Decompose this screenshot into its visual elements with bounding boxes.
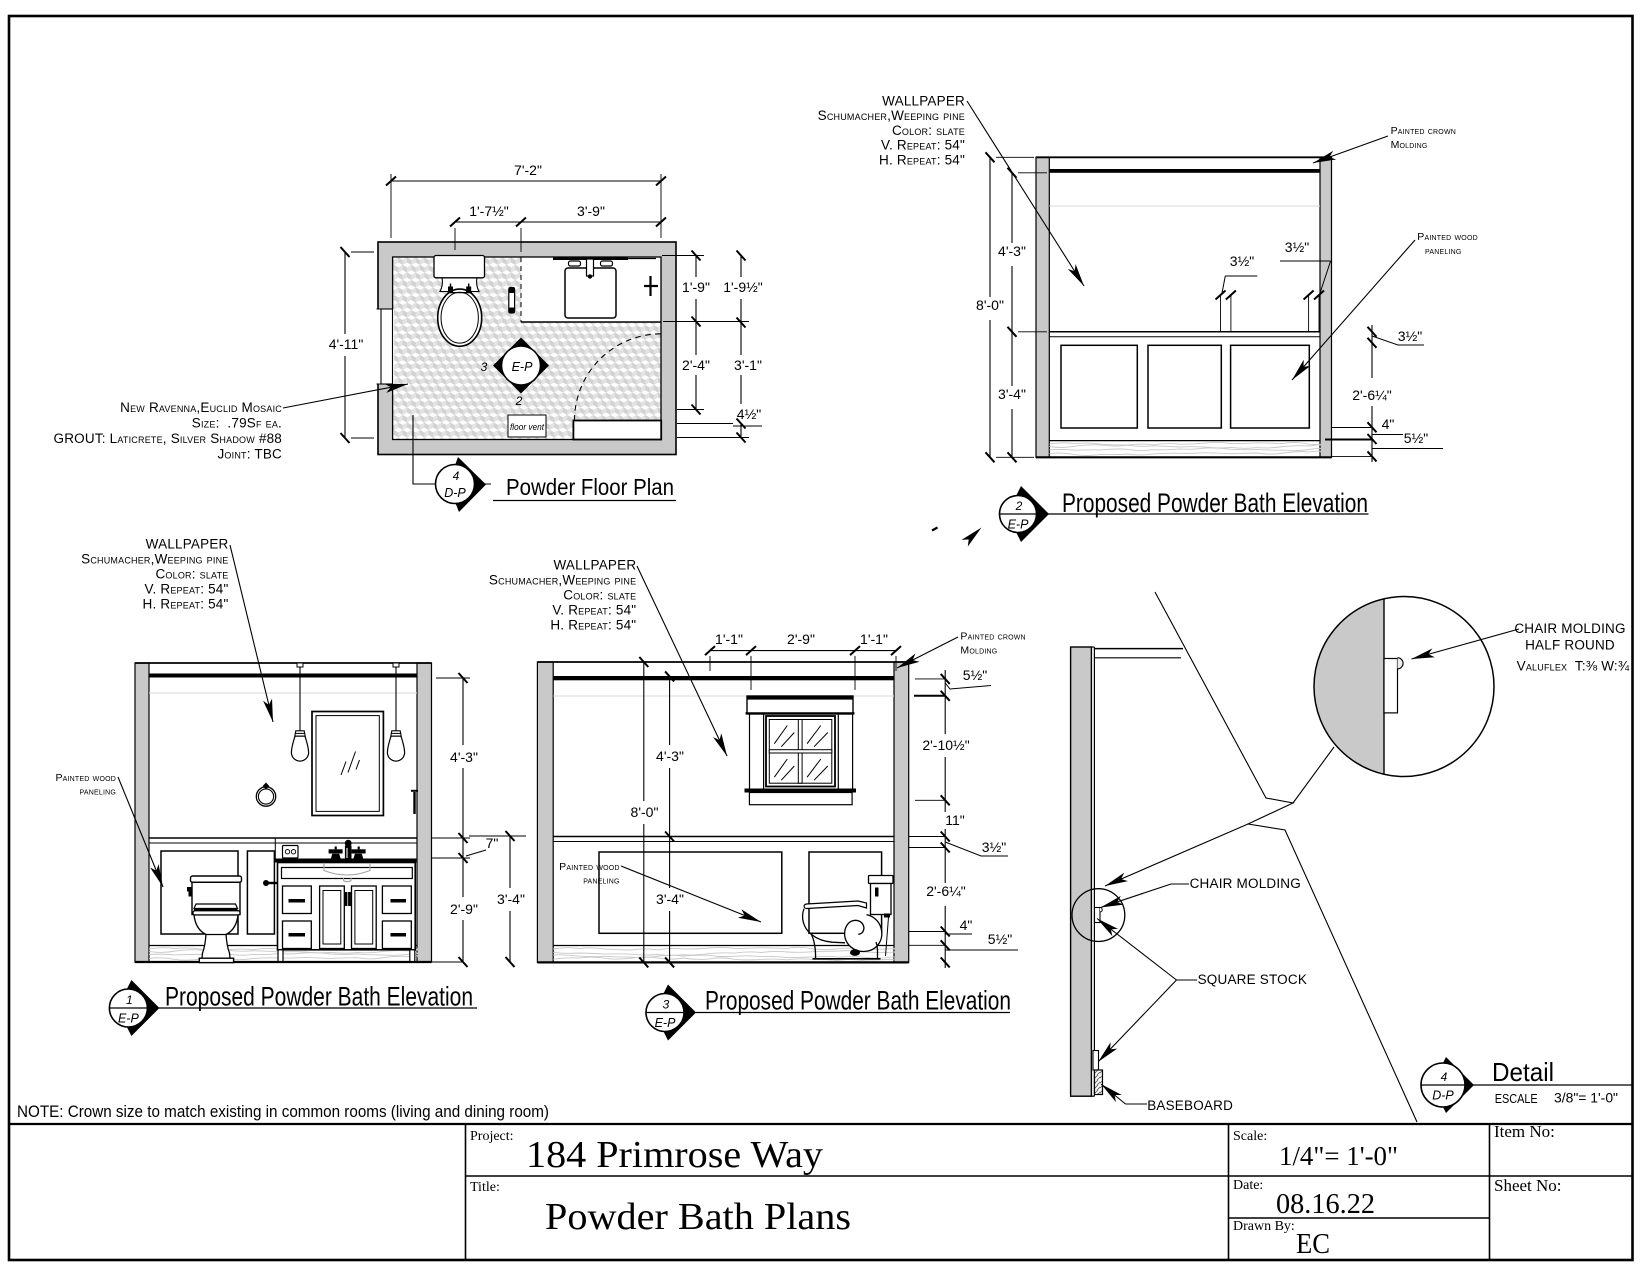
svg-text:Drawn By:: Drawn By:	[1233, 1219, 1295, 1234]
svg-text:E-P: E-P	[512, 360, 534, 374]
svg-text:Detail: Detail	[1492, 1057, 1554, 1087]
svg-text:3'-1": 3'-1"	[734, 357, 762, 373]
svg-text:08.16.22: 08.16.22	[1276, 1189, 1375, 1220]
svg-text:paneling: paneling	[583, 875, 619, 887]
svg-text:Scale:: Scale:	[1233, 1129, 1267, 1144]
svg-text:E-P: E-P	[655, 1016, 677, 1030]
svg-text:Schumacher,Weeping pine: Schumacher,Weeping pine	[489, 573, 636, 588]
svg-text:BASEBOARD: BASEBOARD	[1147, 1098, 1233, 1113]
svg-text:Color: slate: Color: slate	[563, 588, 636, 603]
svg-text:3/8"= 1'-0": 3/8"= 1'-0"	[1554, 1090, 1618, 1106]
svg-text:Valuflex T:⅜ W:¾: Valuflex T:⅜ W:¾	[1517, 659, 1630, 674]
svg-text:2'-4": 2'-4"	[682, 357, 710, 373]
svg-text:2'-10½": 2'-10½"	[922, 737, 969, 753]
svg-text:5½": 5½"	[963, 667, 987, 683]
svg-text:4½": 4½"	[737, 406, 761, 422]
svg-text:E-P: E-P	[118, 1012, 140, 1026]
svg-text:3½": 3½"	[1398, 328, 1422, 344]
svg-text:WALLPAPER: WALLPAPER	[146, 537, 229, 552]
svg-text:EC: EC	[1296, 1228, 1330, 1260]
svg-text:4'-3": 4'-3"	[450, 749, 478, 765]
svg-text:1'-7½": 1'-7½"	[469, 203, 509, 219]
svg-text:Sheet No:: Sheet No:	[1494, 1176, 1562, 1195]
svg-text:Date:: Date:	[1233, 1178, 1263, 1193]
svg-text:4'-3": 4'-3"	[998, 243, 1026, 259]
svg-text:3½": 3½"	[1230, 253, 1254, 269]
svg-text:2: 2	[1015, 499, 1023, 513]
svg-text:4: 4	[453, 469, 460, 483]
svg-text:GROUT: Laticrete, Silver Shado: GROUT: Laticrete, Silver Shadow #88	[54, 431, 282, 446]
svg-text:5½": 5½"	[1404, 430, 1428, 446]
svg-text:WALLPAPER: WALLPAPER	[553, 558, 636, 573]
svg-text:paneling: paneling	[80, 786, 116, 798]
svg-text:Painted wood: Painted wood	[55, 772, 116, 784]
svg-text:3'-4": 3'-4"	[656, 891, 684, 907]
svg-text:Joint: TBC: Joint: TBC	[217, 447, 282, 462]
svg-text:Proposed Powder Bath Elevation: Proposed Powder Bath Elevation	[1062, 488, 1368, 518]
svg-text:1: 1	[126, 993, 133, 1007]
svg-text:D-P: D-P	[444, 486, 466, 500]
svg-text:8'-0": 8'-0"	[976, 297, 1004, 313]
svg-text:3: 3	[481, 360, 488, 374]
svg-text:2: 2	[515, 394, 523, 408]
svg-text:4": 4"	[960, 917, 973, 933]
svg-text:7": 7"	[486, 835, 499, 851]
svg-text:Painted crown: Painted crown	[960, 631, 1025, 643]
svg-text:Color: slate: Color: slate	[155, 567, 228, 582]
svg-text:11": 11"	[945, 812, 965, 828]
svg-text:Title:: Title:	[470, 1180, 500, 1195]
svg-text:E-P: E-P	[1008, 518, 1030, 532]
svg-text:2'-9": 2'-9"	[450, 901, 478, 917]
svg-text:1'-1": 1'-1"	[860, 631, 888, 647]
svg-text:V. Repeat: 54": V. Repeat: 54"	[552, 603, 636, 618]
svg-text:184 Primrose Way: 184 Primrose Way	[526, 1134, 823, 1176]
svg-text:Proposed Powder Bath Elevation: Proposed Powder Bath Elevation	[705, 986, 1011, 1016]
svg-text:1'-9½": 1'-9½"	[723, 279, 763, 295]
svg-text:4'-11": 4'-11"	[329, 336, 364, 352]
svg-text:8'-0": 8'-0"	[631, 804, 659, 820]
svg-text:3: 3	[663, 998, 670, 1012]
svg-text:Proposed Powder Bath Elevation: Proposed Powder Bath Elevation	[165, 982, 473, 1012]
svg-text:Schumacher,Weeping pine: Schumacher,Weeping pine	[81, 552, 228, 567]
svg-text:7'-2": 7'-2"	[514, 162, 542, 178]
svg-text:3½": 3½"	[982, 839, 1006, 855]
svg-text:paneling: paneling	[1425, 245, 1461, 257]
svg-text:Powder Bath Plans: Powder Bath Plans	[545, 1196, 851, 1238]
svg-text:5½": 5½"	[988, 931, 1012, 947]
svg-text:Item No:: Item No:	[1494, 1122, 1555, 1141]
svg-text:HALF ROUND: HALF ROUND	[1525, 637, 1615, 652]
svg-text:2'-6¼": 2'-6¼"	[926, 883, 966, 899]
svg-text:V. Repeat: 54": V. Repeat: 54"	[881, 138, 965, 153]
svg-text:Project:: Project:	[470, 1129, 514, 1144]
svg-text:2'-6¼": 2'-6¼"	[1352, 387, 1392, 403]
svg-text:Molding: Molding	[960, 645, 997, 657]
svg-text:Powder Floor Plan: Powder Floor Plan	[506, 474, 674, 500]
svg-text:2'-9": 2'-9"	[787, 631, 815, 647]
svg-text:Painted wood: Painted wood	[1417, 231, 1478, 243]
svg-text:ESCALE: ESCALE	[1495, 1091, 1538, 1106]
svg-text:WALLPAPER: WALLPAPER	[882, 94, 965, 109]
svg-text:Size: .79Sf ea.: Size: .79Sf ea.	[192, 416, 282, 431]
svg-text:3'-9": 3'-9"	[577, 203, 605, 219]
svg-text:Color: slate: Color: slate	[892, 123, 965, 138]
svg-text:Painted crown: Painted crown	[1391, 125, 1456, 137]
svg-text:3½": 3½"	[1285, 239, 1309, 255]
svg-text:1'-9": 1'-9"	[682, 279, 710, 295]
svg-text:3'-4": 3'-4"	[998, 386, 1026, 402]
svg-text:New Ravenna,Euclid Mosaic: New Ravenna,Euclid Mosaic	[120, 400, 282, 415]
svg-text:NOTE: Crown size to match exis: NOTE: Crown size to match existing in co…	[17, 1102, 549, 1121]
svg-text:floor vent: floor vent	[510, 422, 544, 433]
svg-text:1/4"= 1'-0": 1/4"= 1'-0"	[1279, 1141, 1398, 1171]
svg-text:4'-3": 4'-3"	[656, 748, 684, 764]
svg-text:Painted wood: Painted wood	[559, 861, 620, 873]
svg-text:V. Repeat: 54": V. Repeat: 54"	[145, 582, 229, 597]
svg-text:1'-1": 1'-1"	[715, 631, 743, 647]
svg-text:3'-4": 3'-4"	[497, 891, 525, 907]
svg-text:H. Repeat: 54": H. Repeat: 54"	[879, 152, 965, 167]
svg-text:Schumacher,Weeping pine: Schumacher,Weeping pine	[818, 108, 965, 123]
svg-text:H. Repeat: 54": H. Repeat: 54"	[143, 597, 229, 612]
svg-text:4: 4	[1441, 1070, 1448, 1084]
svg-text:SQUARE STOCK: SQUARE STOCK	[1198, 972, 1307, 987]
svg-text:D-P: D-P	[1432, 1089, 1454, 1103]
svg-text:4": 4"	[1382, 416, 1395, 432]
svg-text:Molding: Molding	[1391, 139, 1428, 151]
svg-text:CHAIR MOLDING: CHAIR MOLDING	[1514, 621, 1625, 636]
svg-text:H. Repeat: 54": H. Repeat: 54"	[550, 618, 636, 633]
svg-text:CHAIR MOLDING: CHAIR MOLDING	[1190, 876, 1301, 891]
